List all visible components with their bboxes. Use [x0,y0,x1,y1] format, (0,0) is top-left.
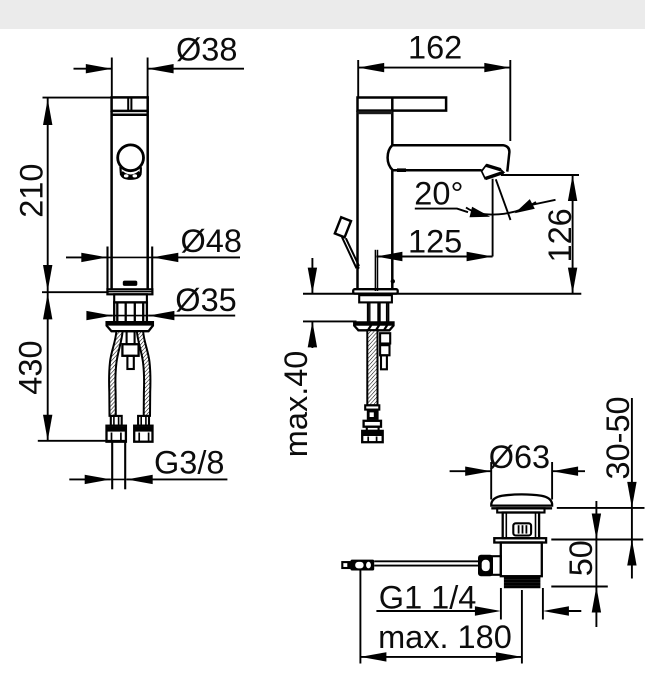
svg-text:50: 50 [563,540,599,576]
svg-text:G3/8: G3/8 [154,444,224,480]
svg-text:max.40: max.40 [278,351,314,458]
svg-text:162: 162 [408,30,462,66]
svg-text:max. 180: max. 180 [378,619,512,655]
svg-text:430: 430 [12,340,48,394]
svg-text:30-50: 30-50 [600,396,636,479]
svg-text:210: 210 [14,164,50,218]
svg-text:125: 125 [408,224,462,260]
svg-text:Ø35: Ø35 [175,282,236,318]
svg-text:Ø48: Ø48 [181,223,242,259]
svg-text:126: 126 [542,208,578,262]
svg-text:Ø63: Ø63 [489,439,550,475]
svg-text:Ø38: Ø38 [176,32,237,68]
svg-text:G1 1/4: G1 1/4 [379,579,477,615]
svg-text:20°: 20° [414,176,463,212]
